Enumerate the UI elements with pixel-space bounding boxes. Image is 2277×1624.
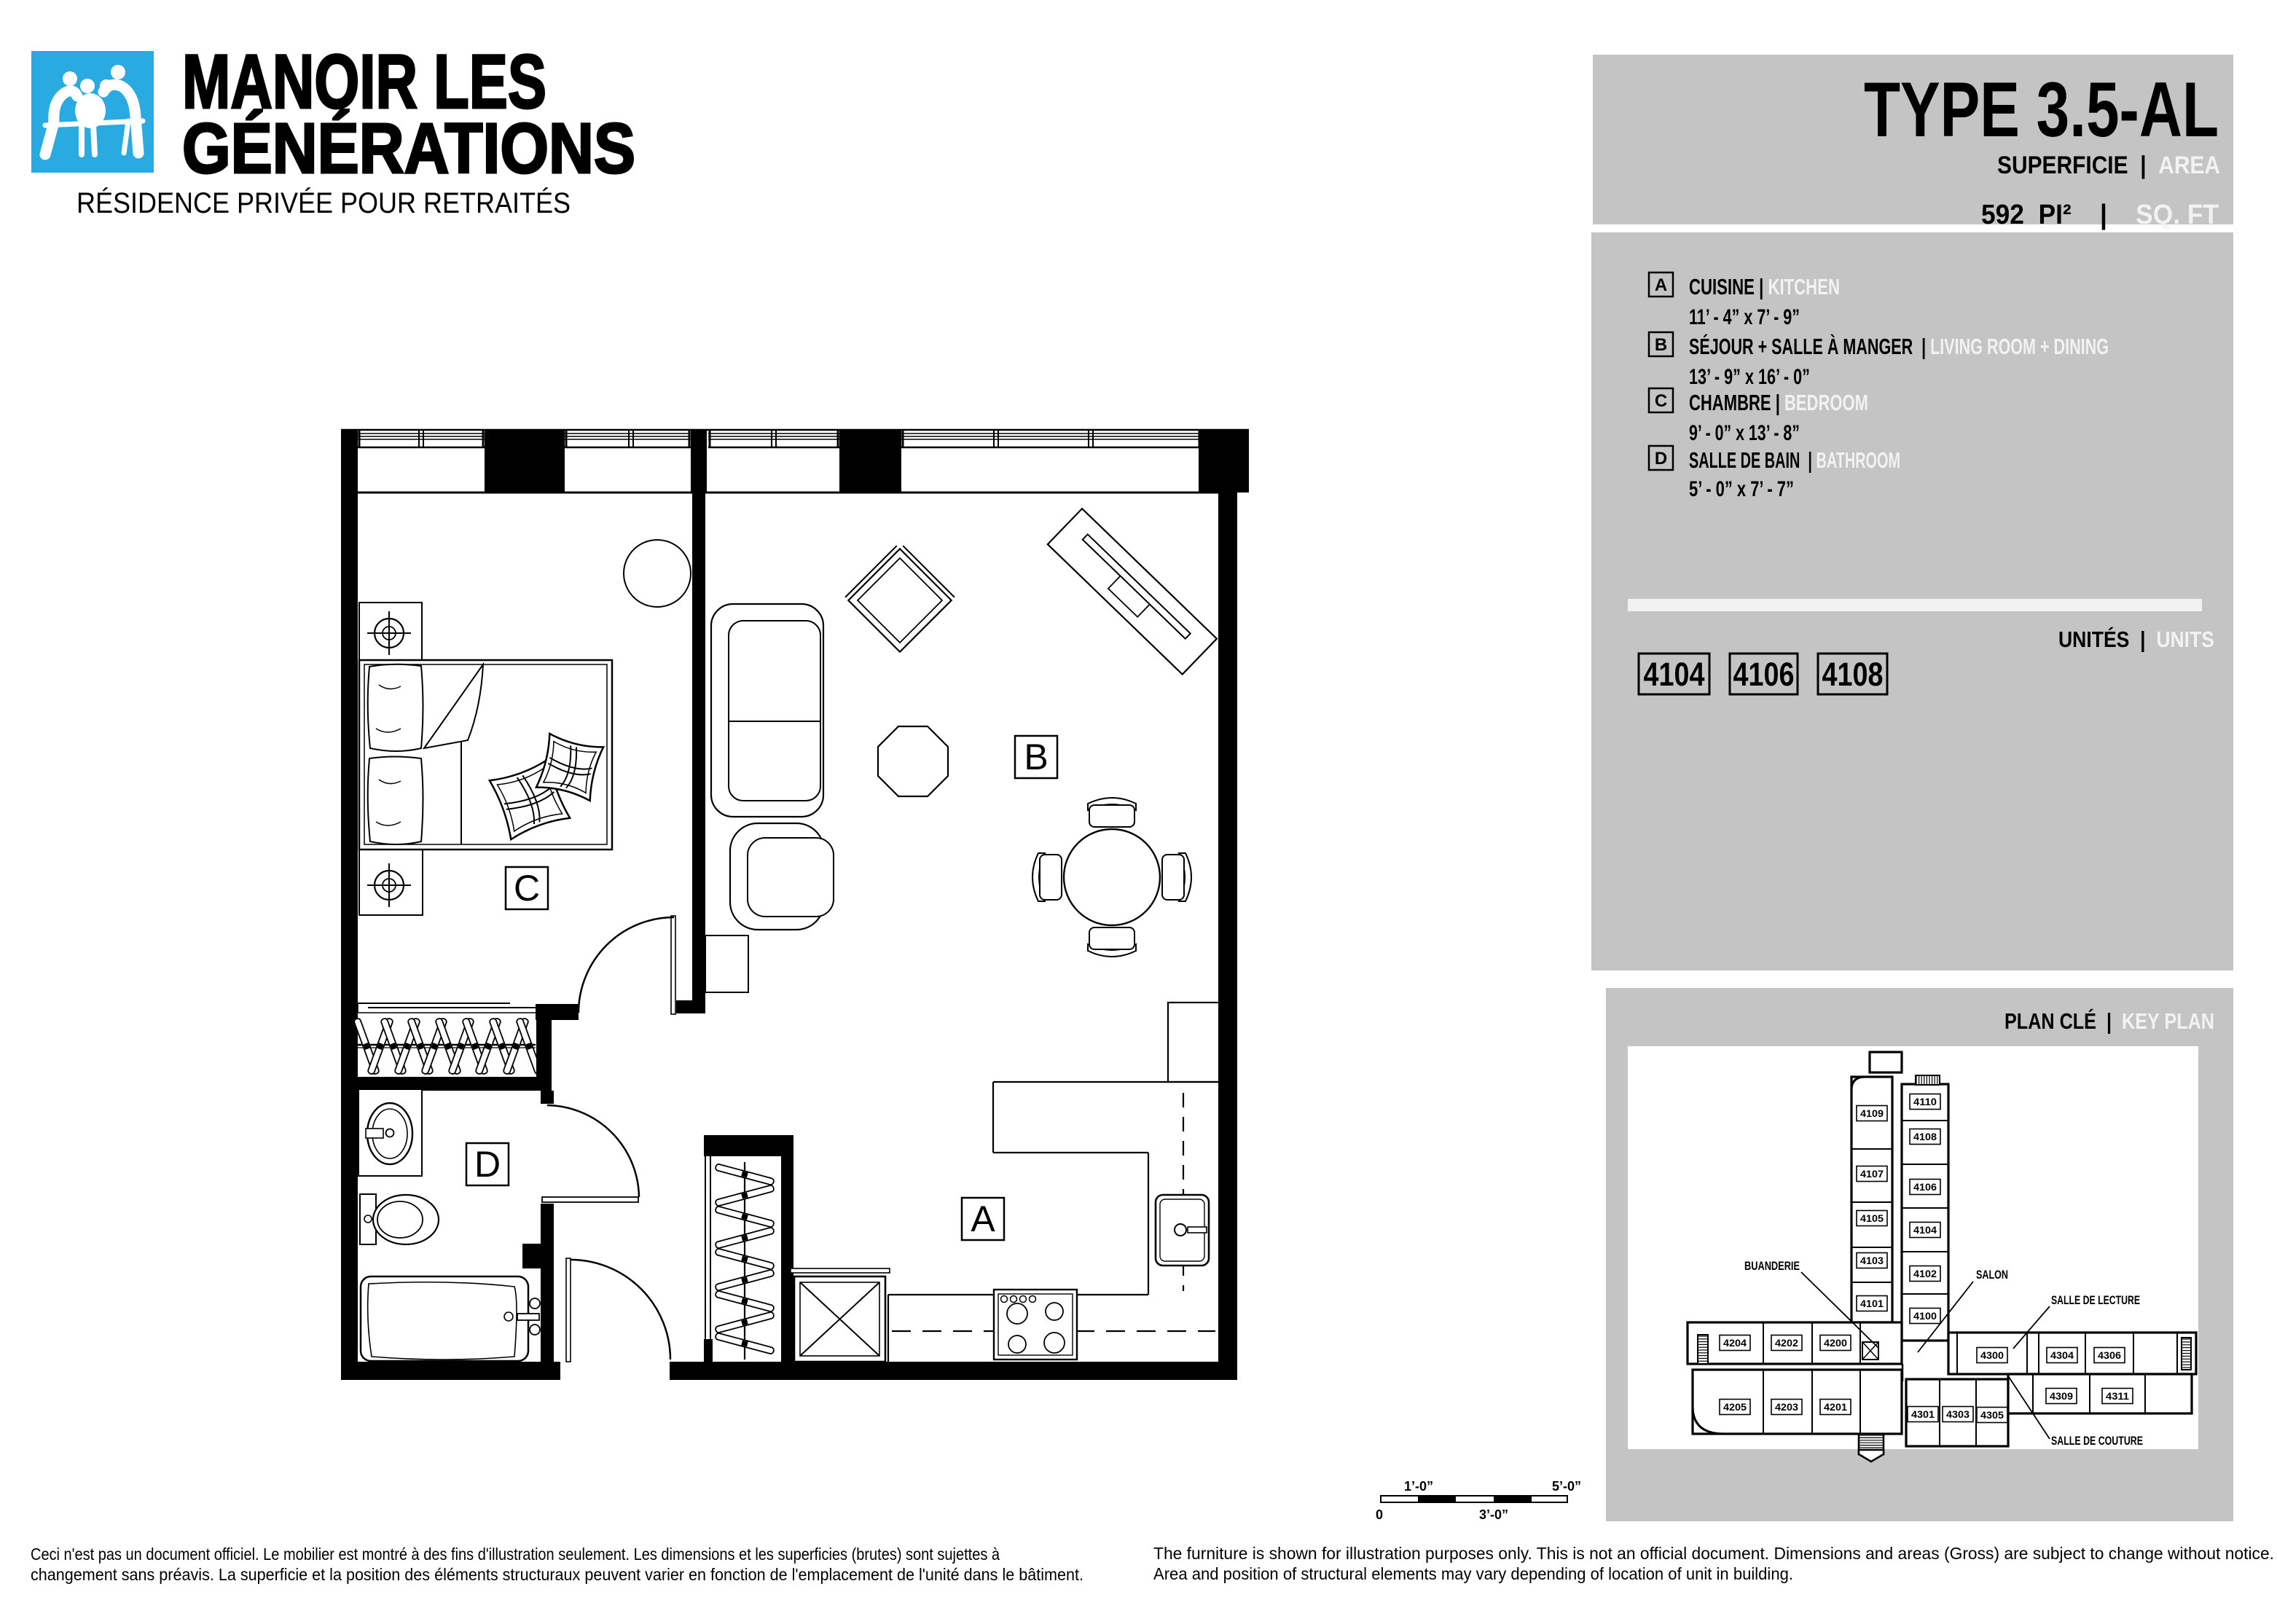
svg-text:4200: 4200 — [1824, 1338, 1847, 1349]
svg-text:C: C — [1655, 391, 1667, 411]
svg-text:Ceci n'est pas un document off: Ceci n'est pas un document officiel. Le … — [31, 1545, 1000, 1564]
svg-text:4101: 4101 — [1860, 1298, 1884, 1309]
svg-text:4100: 4100 — [1913, 1311, 1937, 1322]
svg-text:SALLE DE COUTURE: SALLE DE COUTURE — [2051, 1434, 2143, 1448]
svg-text:4301: 4301 — [1911, 1409, 1935, 1420]
svg-text:5’ - 0” x 7’ - 7”: 5’ - 0” x 7’ - 7” — [1689, 477, 1794, 501]
svg-text:4109: 4109 — [1860, 1108, 1884, 1119]
svg-text:BUANDERIE: BUANDERIE — [1744, 1259, 1800, 1273]
svg-text:4110: 4110 — [1913, 1097, 1937, 1107]
svg-text:The furniture is shown for ill: The furniture is shown for illustration … — [1153, 1544, 2274, 1563]
svg-text:4102: 4102 — [1913, 1268, 1937, 1279]
svg-text:4311: 4311 — [2106, 1391, 2130, 1402]
svg-text:4107: 4107 — [1860, 1169, 1884, 1180]
svg-text:9’ - 0” x 13’ - 8”: 9’ - 0” x 13’ - 8” — [1689, 421, 1800, 445]
svg-text:changement sans préavis. La su: changement sans préavis. La superficie e… — [31, 1565, 1083, 1584]
svg-text:4201: 4201 — [1824, 1402, 1848, 1413]
svg-text:1’-0”: 1’-0” — [1404, 1479, 1433, 1494]
svg-text:4104: 4104 — [1913, 1225, 1937, 1236]
svg-text:UNITÉS | UNITS: UNITÉS | UNITS — [2058, 627, 2214, 652]
svg-text:0: 0 — [1376, 1507, 1383, 1522]
svg-text:CHAMBRE | BEDROOM: CHAMBRE | BEDROOM — [1689, 390, 1868, 415]
svg-text:SUPERFICIE | AREA: SUPERFICIE | AREA — [1997, 152, 2220, 179]
svg-text:5’-0”: 5’-0” — [1552, 1479, 1581, 1494]
svg-text:TYPE 3.5-AL: TYPE 3.5-AL — [1864, 66, 2219, 153]
svg-text:4106: 4106 — [1733, 656, 1795, 693]
svg-text:CUISINE | KITCHEN: CUISINE | KITCHEN — [1689, 274, 1840, 299]
svg-text:4300: 4300 — [1980, 1350, 2004, 1361]
svg-text:D: D — [474, 1144, 501, 1185]
svg-text:C: C — [514, 868, 540, 909]
svg-text:B: B — [1655, 335, 1667, 355]
svg-text:13’ - 9” x 16’ - 0”: 13’ - 9” x 16’ - 0” — [1689, 365, 1810, 389]
svg-text:4203: 4203 — [1775, 1402, 1799, 1413]
svg-text:4108: 4108 — [1913, 1131, 1937, 1142]
svg-text:SALLE DE BAIN | BATHROOM: SALLE DE BAIN | BATHROOM — [1689, 447, 1900, 473]
svg-text:Area and position of structura: Area and position of structural elements… — [1153, 1564, 1793, 1583]
svg-text:4205: 4205 — [1723, 1402, 1747, 1413]
svg-text:4305: 4305 — [1980, 1410, 2004, 1421]
svg-text:11’ - 4” x 7’ - 9”: 11’ - 4” x 7’ - 9” — [1689, 305, 1800, 329]
svg-text:A: A — [971, 1199, 995, 1239]
svg-text:3’-0”: 3’-0” — [1479, 1507, 1508, 1522]
svg-text:4304: 4304 — [2050, 1350, 2074, 1361]
svg-text:PLAN CLÉ | KEY PLAN: PLAN CLÉ | KEY PLAN — [2004, 1008, 2214, 1034]
svg-text:4108: 4108 — [1822, 656, 1884, 693]
svg-text:SALLE DE LECTURE: SALLE DE LECTURE — [2051, 1293, 2140, 1307]
svg-text:4105: 4105 — [1860, 1213, 1884, 1224]
svg-text:4306: 4306 — [2098, 1350, 2122, 1361]
svg-text:4309: 4309 — [2050, 1391, 2073, 1402]
svg-text:SALON: SALON — [1976, 1268, 2008, 1282]
svg-text:B: B — [1024, 737, 1048, 777]
svg-text:592 PI² | SQ. FT: 592 PI² | SQ. FT — [1981, 200, 2219, 230]
svg-text:4204: 4204 — [1723, 1338, 1747, 1349]
svg-text:4202: 4202 — [1775, 1338, 1798, 1349]
svg-text:D: D — [1655, 449, 1667, 468]
svg-text:4104: 4104 — [1644, 656, 1705, 693]
svg-text:4303: 4303 — [1946, 1409, 1970, 1420]
svg-text:4103: 4103 — [1860, 1255, 1884, 1266]
svg-text:RÉSIDENCE PRIVÉE POUR RETRAITÉ: RÉSIDENCE PRIVÉE POUR RETRAITÉS — [77, 187, 571, 219]
svg-text:GÉNÉRATIONS: GÉNÉRATIONS — [182, 109, 635, 188]
svg-text:4106: 4106 — [1913, 1182, 1937, 1193]
svg-text:A: A — [1655, 275, 1667, 295]
svg-text:SÉJOUR + SALLE À MANGER | LIV: SÉJOUR + SALLE À MANGER | LIVING ROOM + … — [1689, 334, 2109, 359]
